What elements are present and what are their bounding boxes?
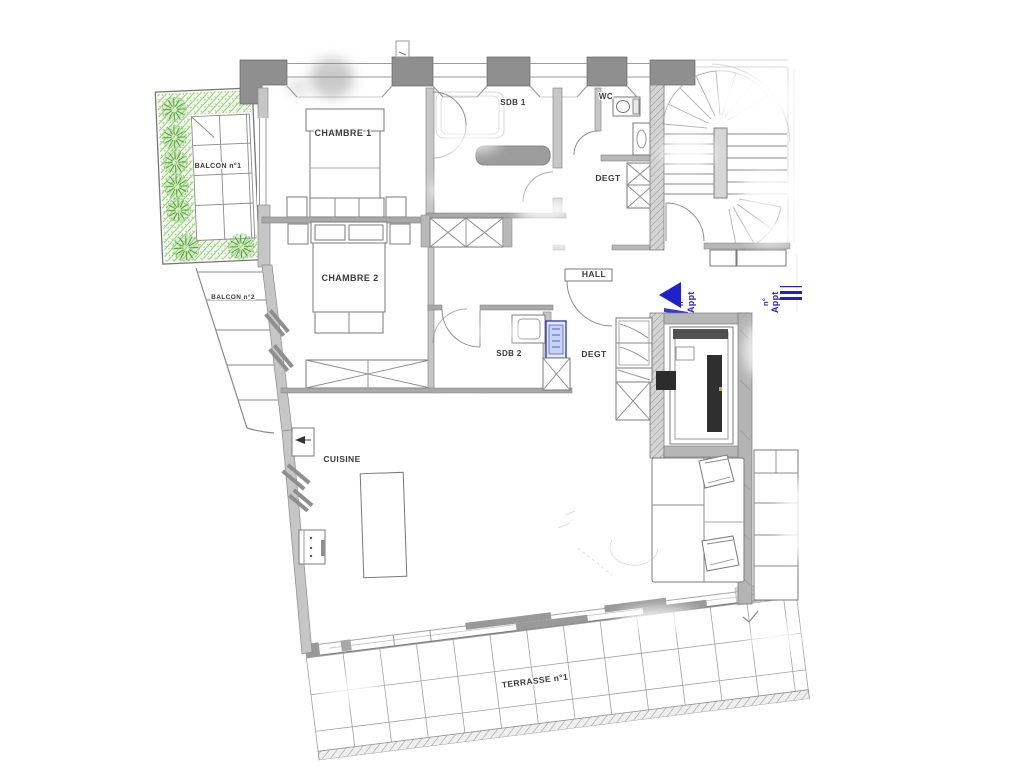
elevator-door [656,371,676,390]
kitchen: CUISINE [281,428,406,578]
duct-shafts [616,318,652,420]
sofa-icon [652,455,744,582]
bed-icon [306,109,384,217]
wardrobe-icon [421,215,512,247]
south-glazing-wall [304,581,796,659]
toilet-icon [613,97,640,116]
pier [392,57,433,86]
duct-shaft-icon [543,358,570,390]
check-mark [743,611,758,622]
room-label-degt-upper: DEGT [595,173,621,183]
landing-steps [710,250,786,266]
bathroom-1: SDB 1 [421,88,566,247]
chimney-stub [396,41,409,57]
stair-west-wall [650,85,664,250]
nightstand-icon [288,224,308,244]
room-label-balcon2: BALCON n°2 [211,293,255,301]
stair-stringer [714,128,727,198]
pier [587,57,627,86]
room-label-degt-lower: DEGT [581,349,607,359]
room-label-sdb2: SDB 2 [496,349,522,358]
room-label-terrasse: TERRASSE n°1 [501,672,568,690]
appt-left-number: n° [676,298,685,306]
window-west [257,118,269,205]
appt-right-label: Appt [770,291,780,313]
bathtub-icon [436,92,504,138]
bedroom-2: CHAMBRE 2 [288,217,434,388]
living-room [558,455,744,582]
appt-arrow-left: Appt n° [659,282,696,316]
washbasin-icon [633,123,650,155]
wc-room: WC [574,88,653,161]
elevator-cabin [670,327,733,444]
terrace: TERRASSE n°1 [298,579,828,768]
room-label-hall: HALL [582,269,606,279]
appt-right-number: n° [761,298,770,306]
elevator-counterweight [707,355,722,432]
room-label-chambre1: CHAMBRE 1 [314,128,371,138]
balcony-1 [155,88,259,264]
room-label-balcon1: BALCON n°1 [195,162,242,170]
nightstand-icon [287,197,307,217]
wardrobe-icon [306,360,430,388]
hallway: HALL [565,269,612,326]
appt-left-label: Appt [686,291,696,313]
living-north-wall [281,388,572,393]
blue-technical-cabinet [546,321,566,358]
floor-plan: TERRASSE n°1 BALCON n°1 BALCON n°2 [0,0,1024,768]
room-label-wc: WC [599,92,613,101]
kitchen-island [360,472,407,577]
room-label-sdb1: SDB 1 [500,98,526,107]
nightstand-icon [390,224,410,244]
cushion-icon [702,536,739,571]
bedroom-1: CHAMBRE 1 [287,109,406,217]
room-label-cuisine: CUISINE [323,454,360,464]
stove-icon [299,530,325,564]
duct-shaft-icon [627,163,653,208]
sketch-marks [558,511,658,575]
nightstand-icon [386,197,406,217]
wall-appliance-box [292,428,314,456]
appt-arrow-right: Appt n° [761,286,802,313]
room-label-chambre2: CHAMBRE 2 [321,273,378,283]
elevator [650,313,748,458]
pier [487,57,530,86]
deck-grid [191,114,254,240]
